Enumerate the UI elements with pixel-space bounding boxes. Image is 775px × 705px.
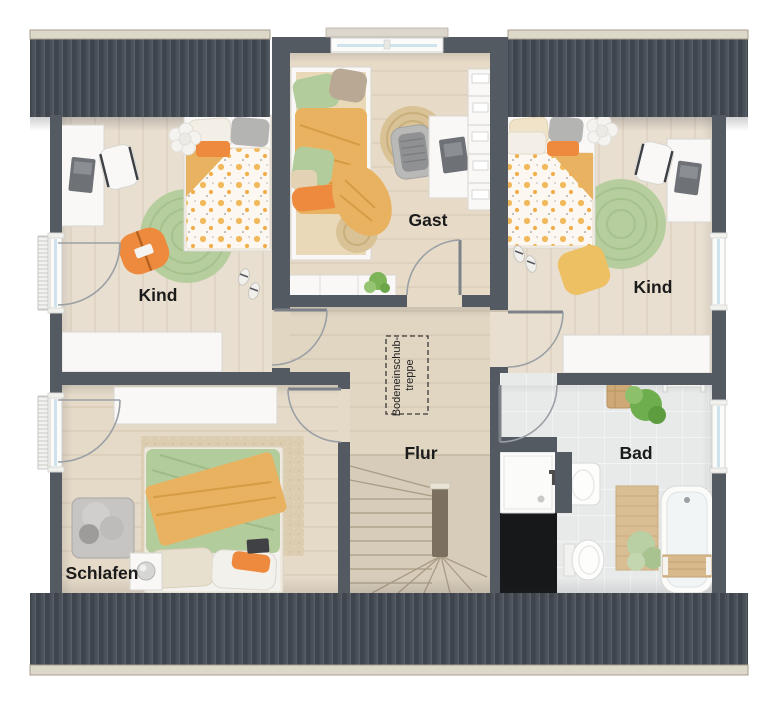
room-label-flur: Flur [404,443,437,463]
room-label-kind-left: Kind [139,285,178,305]
laptop-icon [68,157,95,193]
laptop-icon [674,160,702,195]
laptop-icon [439,136,469,173]
toilet [564,540,604,580]
plant-leaf [648,406,666,424]
tub-faucet-icon [684,497,690,503]
bathtub [661,486,713,593]
shower-faucet-icon [549,470,556,474]
lamp-icon [137,562,155,580]
wall-schlafen-east [338,442,350,593]
pillow [548,115,585,144]
wall-shower-partition [555,452,572,513]
window-east-bad [710,400,727,473]
wall-kind-right-south [557,373,726,385]
pillow [230,116,270,147]
wall-west [50,472,62,593]
shower [500,452,556,513]
window-west-schlafen [38,393,64,472]
wall-kind-left-south [50,372,350,385]
wall-gast-south [462,295,508,307]
stair-stringer [432,487,448,557]
wall-gast-south [272,295,407,307]
wall-shower-north [498,437,557,452]
window-sill [326,28,448,37]
radiator-icon [38,396,48,469]
wall-east [712,115,726,233]
pillow [506,132,546,154]
wall-schlafen-east [338,372,350,389]
staircase [350,455,490,593]
radiator-icon [38,236,48,310]
bed [503,115,595,248]
tablet [247,538,270,554]
room-label-kind-right: Kind [634,277,673,297]
sideboard [563,335,710,373]
wall-gast-east [490,53,508,310]
bath-mat [616,486,664,571]
sideboard [62,332,222,372]
room-label-bad: Bad [619,443,652,463]
gutter-top-left [30,30,270,39]
wall-shelf [468,69,493,210]
stair-newel-cap [430,483,450,489]
drain-icon [538,496,545,503]
window-east-kind [710,233,727,310]
laundry-bench [72,498,134,558]
wardrobe [114,387,277,424]
plant-leaf [625,386,643,404]
pillow-orange [547,141,579,156]
wall-gast-west [272,53,290,310]
wall-gast-north [272,37,331,53]
wall-west [50,115,62,233]
floor-plan: Bodeneinschub- treppe Kind Gast Kind Sch… [0,0,775,705]
bath-caddy [663,555,711,577]
stair-floor [350,455,490,593]
roof-top-left [30,30,270,117]
roof-top-right [508,30,748,117]
pillow-orange [196,141,230,157]
gutter-top-right [508,30,748,39]
floor-plan-canvas: Bodeneinschub- treppe Kind Gast Kind Sch… [0,0,775,705]
double-bed [144,447,288,593]
window-handle [384,40,390,49]
lamp-highlight [140,565,147,572]
room-label-gast: Gast [409,210,448,230]
wall-east [712,310,726,400]
shower-pipe [552,474,555,485]
window-north-gast [326,28,448,52]
roof-bottom [30,593,748,675]
wall-east [712,473,726,593]
window-west-kind [38,233,64,313]
room-label-schlafen: Schlafen [66,563,139,583]
gutter-bottom [30,665,748,675]
shower-tray [500,452,556,513]
wall-gast-north [443,37,508,53]
sideboard-with-plant [283,272,396,296]
